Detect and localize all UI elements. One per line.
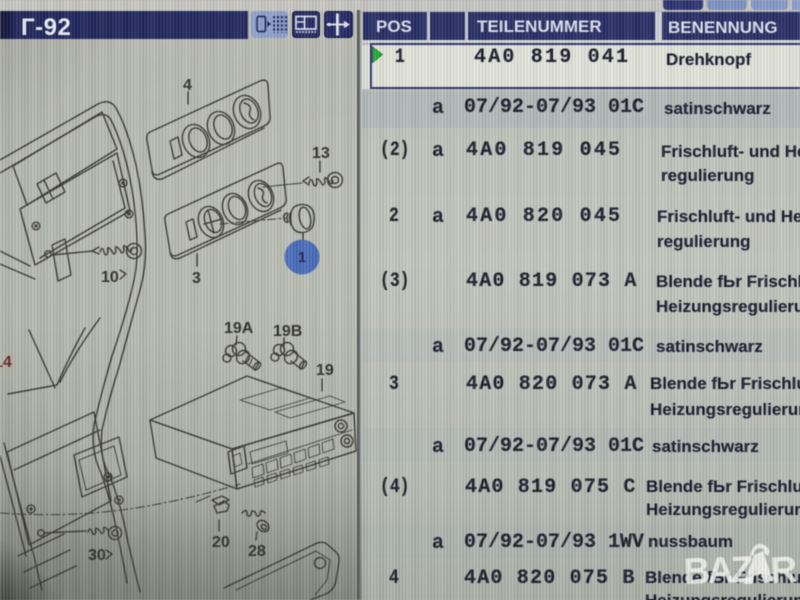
svg-text:28: 28 [248,543,266,560]
svg-text:19: 19 [316,362,334,379]
svg-text:30: 30 [88,547,106,564]
svg-text:19A: 19A [224,320,254,337]
svg-text:20: 20 [212,534,230,551]
svg-text:19B: 19B [273,323,302,340]
svg-text:3: 3 [192,270,201,287]
svg-text:R: R [769,549,798,591]
svg-text:1: 1 [298,249,306,266]
svg-text:10: 10 [101,269,119,286]
svg-text:BAZ: BAZ [684,549,754,592]
svg-text:4: 4 [183,77,192,94]
svg-text:14: 14 [0,354,12,371]
svg-text:13: 13 [312,145,330,162]
